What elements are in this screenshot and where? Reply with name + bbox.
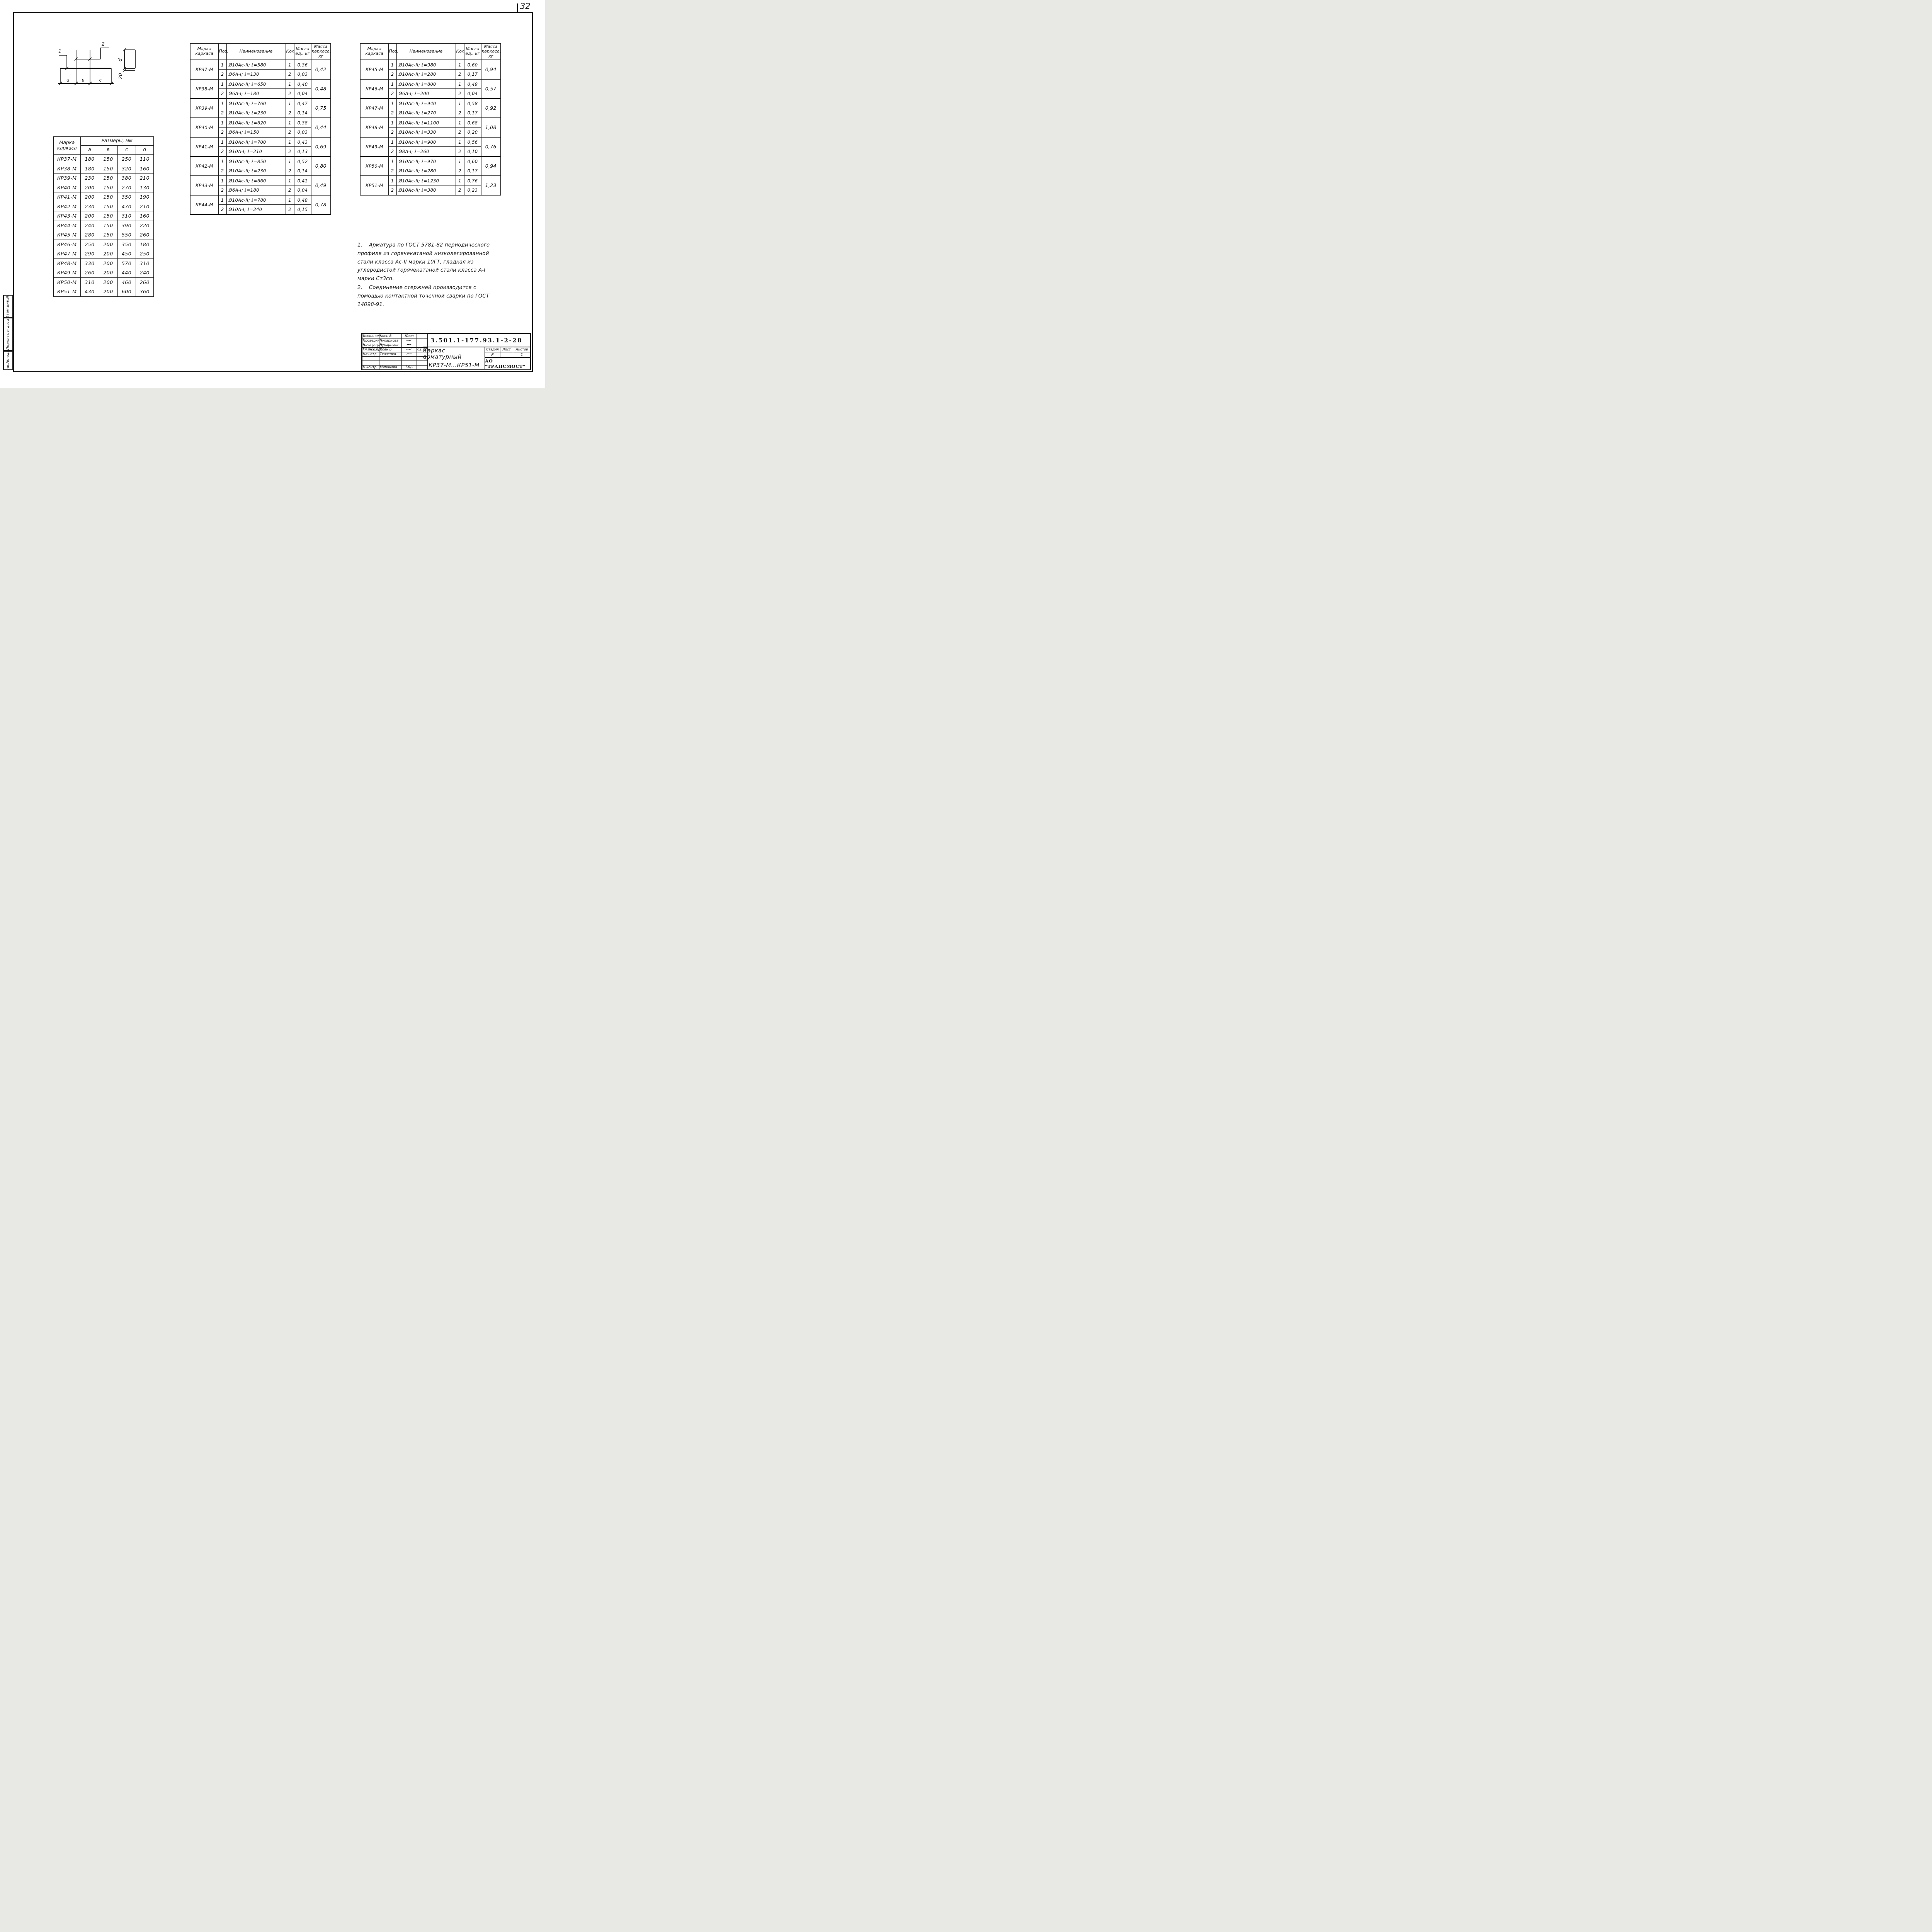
spec-cell-pos: 2 [388, 166, 396, 176]
dims-header-a: a [80, 145, 99, 154]
spec-cell-qty: 2 [456, 108, 464, 118]
spec-cell-name: Ø10Ас-II; ℓ=970 [396, 156, 456, 166]
dims-cell-mark: КР38-М [53, 164, 80, 173]
spec-cell-name: Ø10Ас-II; ℓ=660 [226, 176, 286, 185]
signature-row: Нач.отд.Ткаченко~ [362, 352, 428, 356]
spec-cell-unit-mass: 0,36 [294, 60, 311, 70]
spec-header-pos: Поз. [218, 43, 226, 60]
spec-cell-unit-mass: 0,47 [294, 99, 311, 108]
spec-cell-pos: 1 [388, 156, 396, 166]
dims-cell-mark: КР51-М [53, 287, 80, 297]
spec-cell-frame-mass: 0,42 [311, 60, 331, 79]
spec-cell-pos: 1 [218, 79, 226, 89]
spec-cell-frame-mass: 0,78 [311, 195, 331, 214]
dims-cell-c: 450 [117, 249, 136, 259]
spec-cell-mark: КР47-М [360, 99, 388, 118]
spec-cell-frame-mass: 0,80 [311, 156, 331, 176]
dims-cell-mark: КР37-М [53, 154, 80, 164]
spec-cell-unit-mass: 0,48 [294, 195, 311, 205]
sketch-pos2-label: 2 [102, 41, 105, 47]
spec-cell-name: Ø10Ас-II; ℓ=900 [396, 137, 456, 147]
dims-cell-mark: КР43-М [53, 211, 80, 221]
spec-cell-pos: 1 [218, 118, 226, 128]
sketch-dim-a-label: a [66, 77, 70, 83]
spec-group-row: КР47-М1Ø10Ас-II; ℓ=94010,580,92 [360, 99, 501, 108]
sheet-number: 32 [520, 2, 539, 11]
spec-cell-unit-mass: 0,04 [294, 89, 311, 99]
dims-cell-b: 200 [99, 268, 117, 278]
notes: 1.Арматура по ГОСТ 5781-82 периодическог… [357, 241, 494, 309]
sign-signature [402, 361, 417, 365]
sign-signature: ~ [402, 352, 417, 356]
spec-cell-pos: 2 [388, 147, 396, 156]
dims-cell-d: 160 [136, 164, 154, 173]
spec-cell-qty: 2 [286, 128, 294, 137]
dims-cell-b: 150 [99, 164, 117, 173]
spec-cell-unit-mass: 0,68 [464, 118, 481, 128]
dims-row: КР43-М200150310160 [53, 211, 154, 221]
dims-row: КР49-М260200440240 [53, 268, 154, 278]
dims-cell-d: 260 [136, 277, 154, 287]
dims-cell-mark: КР50-М [53, 277, 80, 287]
dims-cell-mark: КР45-М [53, 230, 80, 240]
dims-cell-a: 430 [80, 287, 99, 297]
dims-cell-a: 280 [80, 230, 99, 240]
spec-cell-name: Ø10Ас-II; ℓ=580 [226, 60, 286, 70]
spec-cell-pos: 1 [218, 60, 226, 70]
spec-cell-pos: 1 [218, 99, 226, 108]
spec-cell-frame-mass: 0,92 [481, 99, 501, 118]
sign-role: Проверил [362, 338, 379, 343]
spec-cell-qty: 1 [286, 118, 294, 128]
spec-cell-qty: 1 [456, 99, 464, 108]
spec-cell-name: Ø10Ас-II; ℓ=850 [226, 156, 286, 166]
spec-cell-qty: 1 [286, 195, 294, 205]
dims-cell-a: 330 [80, 259, 99, 268]
dims-cell-b: 150 [99, 202, 117, 211]
spec-group-row: КР45-М1Ø10Ас-II; ℓ=98010,600,94 [360, 60, 501, 70]
dims-cell-c: 460 [117, 277, 136, 287]
spec-cell-qty: 1 [456, 176, 464, 185]
spec-cell-name: Ø10Ас-II; ℓ=700 [226, 137, 286, 147]
spec-cell-pos: 1 [388, 137, 396, 147]
dims-row: КР40-М200150270130 [53, 183, 154, 192]
sign-role [362, 361, 379, 365]
sketch-dim-c-label: c [99, 77, 102, 83]
spec-header-qty: Кол. [456, 43, 464, 60]
stage-table: Стадия Лист Листов Р 1 АО "ТРАНСМОСТ" [485, 347, 531, 369]
spec-cell-name: Ø10Ас-II; ℓ=620 [226, 118, 286, 128]
spec-cell-pos: 2 [388, 89, 396, 99]
spec-table-right: Марка каркаса Поз. Наименование Кол. Мас… [360, 43, 501, 196]
spec-cell-frame-mass: 0,94 [481, 60, 501, 79]
spec-cell-unit-mass: 0,56 [464, 137, 481, 147]
dims-cell-d: 240 [136, 268, 154, 278]
drawing-sheet: 32 Взам.инв.№ Подпись и дата Инв.№подл. … [0, 0, 545, 388]
dims-row: КР50-М310200460260 [53, 277, 154, 287]
spec-cell-name: Ø6А-I; ℓ=200 [396, 89, 456, 99]
spec-cell-qty: 1 [286, 137, 294, 147]
sign-role: Нач.пр.гр. [362, 343, 379, 347]
spec-header-name: Наименование [226, 43, 286, 60]
spec-group-row: КР43-М1Ø10Ас-II; ℓ=66010,410,49 [190, 176, 331, 185]
sign-signature: Мц- [402, 365, 417, 369]
spec-cell-pos: 1 [388, 118, 396, 128]
dims-row: КР51-М430200600360 [53, 287, 154, 297]
spec-cell-unit-mass: 0,03 [294, 128, 311, 137]
spec-cell-qty: 1 [286, 79, 294, 89]
spec-cell-unit-mass: 0,60 [464, 156, 481, 166]
spec-cell-name: Ø10А-I; ℓ=240 [226, 205, 286, 214]
spec-cell-mark: КР39-М [190, 99, 218, 118]
spec-cell-unit-mass: 0,04 [294, 185, 311, 195]
spec-cell-unit-mass: 0,23 [464, 185, 481, 195]
spec-cell-name: Ø10А-I; ℓ=210 [226, 147, 286, 156]
sign-name: Чупарнова [379, 343, 402, 347]
spec-cell-frame-mass: 0,49 [311, 176, 331, 195]
signature-table: ИсполнилКоен В.КоенПроверилЧупарнова~Нач… [362, 334, 428, 370]
spec-cell-pos: 1 [218, 195, 226, 205]
spec-cell-name: Ø10Ас-II; ℓ=230 [226, 108, 286, 118]
spec-cell-frame-mass: 0,44 [311, 118, 331, 137]
dims-cell-a: 240 [80, 221, 99, 230]
sign-role: Нач.отд. [362, 352, 379, 356]
stamp-inv-podl-label: Инв.№подл. [6, 351, 10, 370]
title-block: ИсполнилКоен В.КоенПроверилЧупарнова~Нач… [361, 333, 531, 370]
spec-cell-qty: 1 [286, 99, 294, 108]
spec-cell-name: Ø10Ас-II; ℓ=1230 [396, 176, 456, 185]
sign-name [379, 361, 402, 365]
spec-group-row: КР39-М1Ø10Ас-II; ℓ=76010,470,75 [190, 99, 331, 108]
stamp-podpis-data: Подпись и дата [3, 318, 13, 351]
signature-mark: Мц- [405, 366, 413, 370]
spec-cell-frame-mass: 0,69 [311, 137, 331, 156]
document-number: 3.501.1-177.93.1-2-28 [423, 334, 530, 347]
stamp-podpis-data-label: Подпись и дата [6, 319, 10, 350]
dims-row: КР48-М330200570310 [53, 259, 154, 268]
spec-cell-unit-mass: 0,15 [294, 205, 311, 214]
signature-row: Нач.пр.гр.Чупарнова~ [362, 343, 428, 347]
dims-cell-a: 310 [80, 277, 99, 287]
spec-cell-unit-mass: 0,04 [464, 89, 481, 99]
spec-group-row: КР48-М1Ø10Ас-II; ℓ=110010,681,08 [360, 118, 501, 128]
spec-cell-pos: 2 [388, 185, 396, 195]
dims-cell-b: 150 [99, 154, 117, 164]
note-1: 1.Арматура по ГОСТ 5781-82 периодическог… [357, 241, 494, 283]
dims-row: КР47-М290200450250 [53, 249, 154, 259]
spec-cell-qty: 1 [456, 60, 464, 70]
spec-cell-name: Ø10Ас-II; ℓ=280 [396, 70, 456, 79]
spec-cell-unit-mass: 0,52 [294, 156, 311, 166]
dims-cell-d: 130 [136, 183, 154, 192]
dims-cell-c: 390 [117, 221, 136, 230]
dims-cell-mark: КР44-М [53, 221, 80, 230]
dims-cell-d: 360 [136, 287, 154, 297]
dims-cell-mark: КР48-М [53, 259, 80, 268]
stage-value-listov: 1 [513, 352, 531, 357]
spec-cell-mark: КР44-М [190, 195, 218, 214]
spec-cell-pos: 2 [388, 128, 396, 137]
spec-cell-name: Ø6А-I; ℓ=180 [226, 89, 286, 99]
spec-cell-frame-mass: 0,94 [481, 156, 501, 176]
spec-cell-mark: КР45-М [360, 60, 388, 79]
signature-row [362, 356, 428, 361]
signature-row: Н.контр.МироноваМц- [362, 365, 428, 369]
spec-cell-mark: КР38-М [190, 79, 218, 99]
spec-table-left: Марка каркаса Поз. Наименование Кол. Мас… [190, 43, 331, 215]
spec-cell-unit-mass: 0,76 [464, 176, 481, 185]
spec-cell-unit-mass: 0,13 [294, 147, 311, 156]
spec-cell-qty: 2 [456, 185, 464, 195]
spec-group-row: КР40-М1Ø10Ас-II; ℓ=62010,380,44 [190, 118, 331, 128]
dims-cell-b: 150 [99, 192, 117, 202]
spec-cell-qty: 2 [456, 70, 464, 79]
sign-role: Исполнил [362, 334, 379, 338]
sign-name: Миронова [379, 365, 402, 369]
spec-cell-qty: 2 [286, 89, 294, 99]
spec-cell-qty: 2 [286, 147, 294, 156]
spec-cell-unit-mass: 0,20 [464, 128, 481, 137]
dims-cell-c: 600 [117, 287, 136, 297]
spec-cell-name: Ø6А-I; ℓ=180 [226, 185, 286, 195]
dims-cell-d: 180 [136, 240, 154, 249]
spec-cell-name: Ø8А-I; ℓ=260 [396, 147, 456, 156]
dims-header-mark: Марка каркаса [53, 137, 80, 154]
spec-cell-qty: 2 [286, 166, 294, 176]
signature-row: ПроверилЧупарнова~ [362, 338, 428, 343]
spec-cell-name: Ø6А-I; ℓ=150 [226, 128, 286, 137]
spec-header-pos: Поз. [388, 43, 396, 60]
spec-cell-name: Ø10Ас-II; ℓ=760 [226, 99, 286, 108]
dims-cell-a: 230 [80, 202, 99, 211]
spec-cell-qty: 2 [286, 205, 294, 214]
stage-header-list: Лист [500, 347, 513, 352]
dims-cell-a: 230 [80, 173, 99, 183]
spec-cell-pos: 1 [388, 79, 396, 89]
stage-value-list [500, 352, 513, 357]
dimensions-table: Марка каркаса Размеры, мм a в c d КР37-М… [53, 136, 154, 297]
dims-row: КР44-М240150390220 [53, 221, 154, 230]
dims-cell-a: 250 [80, 240, 99, 249]
spec-table-left-body: КР37-М1Ø10Ас-II; ℓ=58010,360,422Ø6А-I; ℓ… [190, 60, 331, 214]
frame-sketch: 1 2 a в c d 20 [44, 33, 141, 93]
spec-cell-mark: КР51-М [360, 176, 388, 195]
spec-cell-qty: 2 [286, 70, 294, 79]
signature-row: Гл.инж.пр.Коен Б.~02.94 [362, 347, 428, 352]
spec-cell-name: Ø10Ас-II; ℓ=330 [396, 128, 456, 137]
dims-cell-d: 190 [136, 192, 154, 202]
spec-group-row: КР41-М1Ø10Ас-II; ℓ=70010,430,69 [190, 137, 331, 147]
dims-row: КР39-М230150380210 [53, 173, 154, 183]
spec-cell-pos: 2 [218, 108, 226, 118]
spec-cell-name: Ø10Ас-II; ℓ=780 [226, 195, 286, 205]
dims-cell-c: 380 [117, 173, 136, 183]
dims-row: КР46-М250200350180 [53, 240, 154, 249]
note-1-text: Арматура по ГОСТ 5781-82 периодического … [357, 242, 490, 282]
spec-cell-qty: 1 [286, 60, 294, 70]
dims-cell-d: 250 [136, 249, 154, 259]
spec-cell-pos: 2 [218, 128, 226, 137]
dims-row: КР38-М180150320160 [53, 164, 154, 173]
spec-cell-unit-mass: 0,10 [464, 147, 481, 156]
dims-header-b: в [99, 145, 117, 154]
spec-group-row: КР46-М1Ø10Ас-II; ℓ=80010,490,57 [360, 79, 501, 89]
spec-group-row: КР38-М1Ø10Ас-II; ℓ=65010,400,48 [190, 79, 331, 89]
spec-cell-mark: КР49-М [360, 137, 388, 156]
stage-value-stadiya: Р [485, 352, 500, 357]
sign-name: Коен Б. [379, 347, 402, 352]
dims-cell-a: 200 [80, 192, 99, 202]
spec-cell-name: Ø10Ас-II; ℓ=1100 [396, 118, 456, 128]
spec-cell-qty: 2 [456, 89, 464, 99]
dims-cell-a: 200 [80, 183, 99, 192]
dims-cell-a: 180 [80, 164, 99, 173]
dims-cell-d: 110 [136, 154, 154, 164]
dims-row: КР45-М280150550260 [53, 230, 154, 240]
dims-cell-b: 150 [99, 183, 117, 192]
dims-cell-b: 200 [99, 240, 117, 249]
dims-cell-d: 310 [136, 259, 154, 268]
spec-cell-pos: 1 [218, 156, 226, 166]
spec-cell-unit-mass: 0,03 [294, 70, 311, 79]
dims-cell-a: 180 [80, 154, 99, 164]
spec-cell-qty: 1 [286, 176, 294, 185]
spec-cell-name: Ø10Ас-II; ℓ=980 [396, 60, 456, 70]
spec-cell-unit-mass: 0,14 [294, 166, 311, 176]
sketch-hook-20-label: 20 [117, 73, 123, 79]
sheet-number-tick [517, 3, 518, 12]
stamp-vzam-inv: Взам.инв.№ [3, 295, 13, 318]
sign-role: Гл.инж.пр. [362, 347, 379, 352]
spec-table-right-body: КР45-М1Ø10Ас-II; ℓ=98010,600,942Ø10Ас-II… [360, 60, 501, 195]
spec-cell-mark: КР48-М [360, 118, 388, 137]
spec-header-mark: Марка каркаса [360, 43, 388, 60]
spec-cell-pos: 2 [218, 205, 226, 214]
note-2-number: 2. [357, 284, 369, 292]
spec-cell-frame-mass: 0,75 [311, 99, 331, 118]
dims-cell-d: 220 [136, 221, 154, 230]
signature-row [362, 361, 428, 365]
spec-cell-unit-mass: 0,17 [464, 70, 481, 79]
dims-header-c: c [117, 145, 136, 154]
dims-row: КР37-М180150250110 [53, 154, 154, 164]
sign-name: Чупарнова [379, 338, 402, 343]
spec-group-row: КР44-М1Ø10Ас-II; ℓ=78010,480,78 [190, 195, 331, 205]
spec-cell-name: Ø10Ас-II; ℓ=650 [226, 79, 286, 89]
sketch-dim-b-label: в [82, 77, 84, 83]
stage-header-listov: Листов [513, 347, 531, 352]
signature-mark: ~ [405, 350, 413, 358]
spec-cell-mark: КР40-М [190, 118, 218, 137]
drawing-title-line2: КР37-М...КР51-М [429, 362, 480, 369]
spec-cell-mark: КР50-М [360, 156, 388, 176]
dims-cell-d: 260 [136, 230, 154, 240]
spec-cell-qty: 1 [456, 79, 464, 89]
stamp-inv-podl: Инв.№подл. [3, 351, 13, 370]
dims-header-d: d [136, 145, 154, 154]
leader-2 [75, 48, 109, 61]
spec-header-unit-mass: Масса ед., кг [464, 43, 481, 60]
spec-cell-unit-mass: 0,17 [464, 108, 481, 118]
note-2-text: Соединение стержней производится с помощ… [357, 285, 489, 308]
spec-cell-pos: 2 [218, 89, 226, 99]
spec-cell-qty: 1 [456, 137, 464, 147]
spec-header-frame-mass: Масса каркаса, кг [481, 43, 501, 60]
dims-cell-c: 350 [117, 240, 136, 249]
dims-cell-mark: КР39-М [53, 173, 80, 183]
spec-cell-unit-mass: 0,14 [294, 108, 311, 118]
sign-role: Н.контр. [362, 365, 379, 369]
drawing-title-line1: Каркас арматурный [423, 348, 485, 360]
dims-cell-c: 470 [117, 202, 136, 211]
spec-cell-qty: 2 [456, 147, 464, 156]
spec-cell-qty: 2 [456, 166, 464, 176]
spec-cell-frame-mass: 0,48 [311, 79, 331, 99]
spec-group-row: КР51-М1Ø10Ас-II; ℓ=123010,761,23 [360, 176, 501, 185]
spec-cell-pos: 1 [388, 60, 396, 70]
spec-cell-pos: 2 [218, 185, 226, 195]
dims-cell-c: 270 [117, 183, 136, 192]
dims-cell-d: 210 [136, 173, 154, 183]
spec-cell-unit-mass: 0,60 [464, 60, 481, 70]
spec-cell-pos: 1 [218, 137, 226, 147]
spec-cell-unit-mass: 0,58 [464, 99, 481, 108]
dims-row: КР41-М200150350190 [53, 192, 154, 202]
spec-header-mark: Марка каркаса [190, 43, 218, 60]
dims-cell-c: 310 [117, 211, 136, 221]
spec-group-row: КР42-М1Ø10Ас-II; ℓ=85010,520,80 [190, 156, 331, 166]
dims-cell-mark: КР46-М [53, 240, 80, 249]
spec-cell-pos: 2 [388, 70, 396, 79]
spec-cell-mark: КР37-М [190, 60, 218, 79]
spec-header-qty: Кол. [286, 43, 294, 60]
spec-cell-name: Ø10Ас-II; ℓ=280 [396, 166, 456, 176]
leader-1 [59, 55, 68, 70]
dims-cell-c: 550 [117, 230, 136, 240]
dims-cell-b: 150 [99, 211, 117, 221]
spec-group-row: КР49-М1Ø10Ас-II; ℓ=90010,560,76 [360, 137, 501, 147]
dims-cell-d: 210 [136, 202, 154, 211]
dims-cell-mark: КР47-М [53, 249, 80, 259]
dims-cell-b: 150 [99, 173, 117, 183]
dims-cell-b: 200 [99, 249, 117, 259]
spec-header-name: Наименование [396, 43, 456, 60]
spec-cell-qty: 1 [456, 156, 464, 166]
dimensions-table-body: КР37-М180150250110КР38-М180150320160КР39… [53, 154, 154, 297]
dims-cell-mark: КР49-М [53, 268, 80, 278]
sketch-pos1-label: 1 [58, 48, 61, 54]
company-name: АО "ТРАНСМОСТ" [485, 357, 531, 369]
spec-cell-frame-mass: 0,76 [481, 137, 501, 156]
note-1-number: 1. [357, 241, 369, 250]
spec-cell-qty: 2 [456, 128, 464, 137]
spec-cell-name: Ø10Ас-II; ℓ=270 [396, 108, 456, 118]
spec-header-frame-mass: Масса каркаса, кг [311, 43, 331, 60]
spec-group-row: КР50-М1Ø10Ас-II; ℓ=97010,600,94 [360, 156, 501, 166]
dims-cell-b: 150 [99, 230, 117, 240]
bar-section [124, 50, 135, 70]
spec-cell-unit-mass: 0,49 [464, 79, 481, 89]
spec-cell-mark: КР42-М [190, 156, 218, 176]
spec-cell-qty: 2 [286, 185, 294, 195]
dims-cell-mark: КР42-М [53, 202, 80, 211]
spec-cell-unit-mass: 0,41 [294, 176, 311, 185]
spec-cell-name: Ø10Ас-II; ℓ=380 [396, 185, 456, 195]
spec-cell-mark: КР41-М [190, 137, 218, 156]
spec-cell-frame-mass: 0,57 [481, 79, 501, 99]
dims-cell-mark: КР41-М [53, 192, 80, 202]
spec-cell-pos: 1 [388, 99, 396, 108]
